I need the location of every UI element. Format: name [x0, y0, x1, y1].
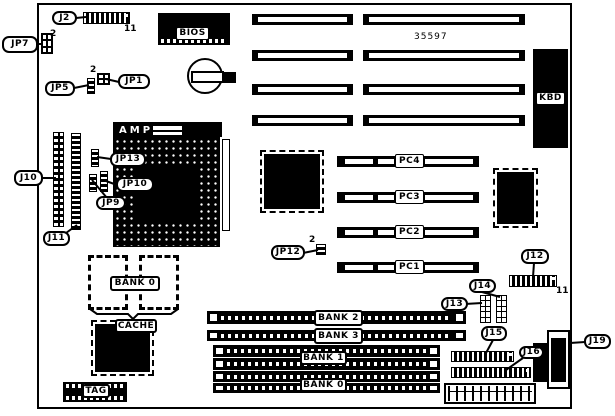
callout-j19: J19 [584, 334, 611, 349]
cache-label: CACHE [115, 319, 157, 333]
simm-label-bank1: BANK 1 [300, 351, 347, 365]
callout-j16: J16 [519, 346, 544, 359]
bios-label: BIOS [176, 27, 209, 40]
callout-j13: J13 [441, 297, 468, 311]
callout-j14: J14 [469, 279, 496, 293]
pci-slot-label-pc1: PC1 [395, 260, 424, 274]
pci-slot-label-pc4: PC4 [395, 154, 424, 168]
tag-label: TAG [82, 384, 110, 398]
cache-bank-label: BANK 0 [110, 276, 160, 291]
callout-j2: J2 [52, 11, 77, 25]
motherboard-diagram: 35597 KBD BIOS AMP [0, 0, 615, 416]
callout-jp7: JP7 [2, 36, 38, 53]
callout-jp13: JP13 [110, 152, 146, 167]
pci-slot-label-pc3: PC3 [395, 190, 424, 204]
j2-pin-number: 11 [124, 25, 137, 34]
callout-jp1: JP1 [118, 74, 150, 89]
callout-j11: J11 [43, 231, 70, 246]
pci-slot-label-pc2: PC2 [395, 225, 424, 239]
simm-label-bank3: BANK 3 [314, 328, 363, 344]
simm-label-bank0: BANK 0 [300, 378, 347, 392]
j12-pin-number: 11 [556, 287, 569, 296]
callout-jp12: JP12 [271, 245, 305, 260]
callout-jp9: JP9 [96, 196, 126, 210]
simm-label-bank2: BANK 2 [314, 310, 363, 326]
callout-j15: J15 [481, 326, 507, 341]
board-part-number: 35597 [414, 33, 448, 42]
jp12-pin-number: 2 [309, 236, 315, 245]
callout-jp10: JP10 [116, 177, 154, 192]
callout-j10: J10 [14, 170, 43, 186]
callout-jp5: JP5 [45, 81, 75, 96]
keyboard-connector-label: KBD [536, 92, 565, 105]
jp7-pin-number: 2 [50, 30, 56, 39]
jp1-pin-number: 2 [90, 66, 96, 75]
callout-j12: J12 [521, 249, 549, 264]
